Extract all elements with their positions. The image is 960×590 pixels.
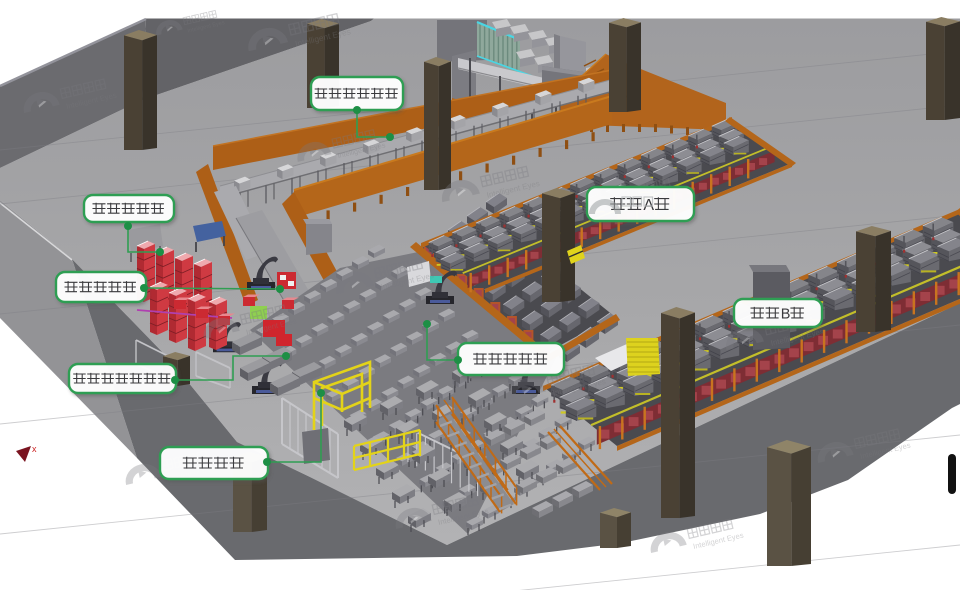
svg-text:B: B (781, 306, 791, 322)
svg-text:x: x (32, 444, 37, 454)
